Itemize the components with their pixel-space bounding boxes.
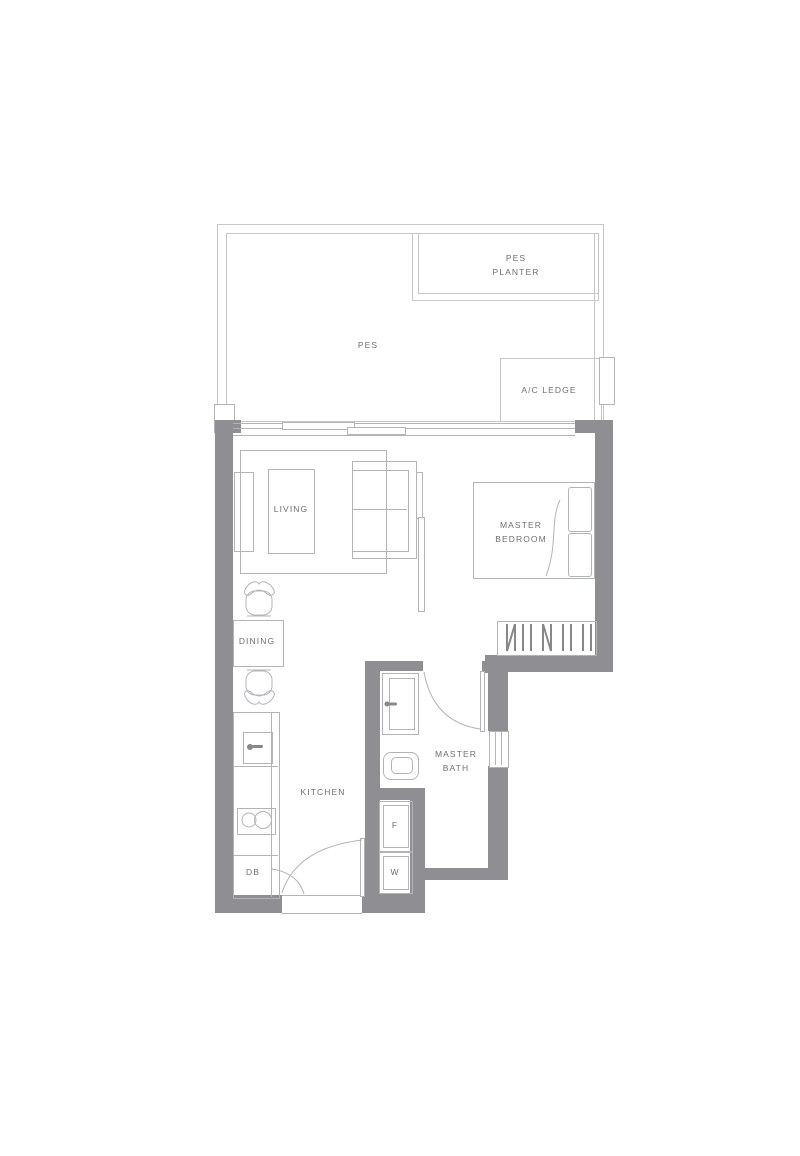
pillow-1 <box>568 487 592 532</box>
sliding-partition-panel-1 <box>416 472 423 519</box>
wall-void-bottom <box>423 868 508 880</box>
wall-fw-bottom <box>362 893 425 913</box>
wall-fw-top-band <box>365 788 425 800</box>
ac-ledge-label: A/C LEDGE <box>521 383 576 397</box>
dining-label: DINING <box>239 634 275 648</box>
pes-planter-label: PES PLANTER <box>493 251 540 279</box>
bath-door-swing-arc <box>424 672 480 729</box>
entry-threshold <box>282 895 362 914</box>
bath-window-line-2 <box>501 732 502 765</box>
pes-label: PES <box>358 338 378 352</box>
wall-bath-top-right-stub <box>482 661 508 673</box>
master-bath-label: MASTER BATH <box>435 747 477 775</box>
kitchen-counter-divider-2 <box>233 855 278 856</box>
wc-bowl <box>391 757 413 774</box>
kitchen-counter-divider-1 <box>233 766 278 767</box>
dining-chair-2-backrest <box>245 691 275 704</box>
wall-left <box>215 420 233 913</box>
sliding-panel-2 <box>347 427 406 435</box>
line-work-overlay <box>0 0 800 1156</box>
bath-window-louvre <box>489 731 509 768</box>
column-right <box>599 357 615 405</box>
tv-console <box>234 472 254 552</box>
entry-door-leaf <box>360 838 365 897</box>
kitchen-label: KITCHEN <box>300 785 345 799</box>
dining-chair-2-seat <box>246 671 272 695</box>
sofa-cushion-divider <box>352 509 407 510</box>
sliding-partition-panel-2 <box>418 517 425 612</box>
bath-door-leaf <box>480 671 485 732</box>
living-label: LIVING <box>274 502 308 516</box>
wardrobe <box>497 621 597 656</box>
bath-window-line-1 <box>495 732 496 765</box>
washer-label: W <box>390 865 399 879</box>
db-label: DB <box>246 865 260 879</box>
dining-chair-1-backrest <box>245 582 275 595</box>
fridge-label: F <box>392 818 398 832</box>
entry-door-swing-arc <box>282 840 362 893</box>
kitchen-hob <box>237 808 276 835</box>
kitchen-sink <box>243 732 273 764</box>
pillow-2 <box>568 533 592 577</box>
sofa-seat <box>352 470 409 552</box>
wall-bath-right-lower <box>488 766 508 880</box>
vanity-basin <box>389 678 415 730</box>
wall-bath-left <box>365 661 380 800</box>
wall-bath-top <box>365 661 423 671</box>
floor-plan: PES PLANTER PES A/C LEDGE LIVING MASTER … <box>0 0 800 1156</box>
master-bedroom-label: MASTER BEDROOM <box>495 518 547 546</box>
dining-chair-1-seat <box>246 591 272 615</box>
sliding-panel-1 <box>282 422 355 430</box>
wall-right <box>595 420 613 672</box>
